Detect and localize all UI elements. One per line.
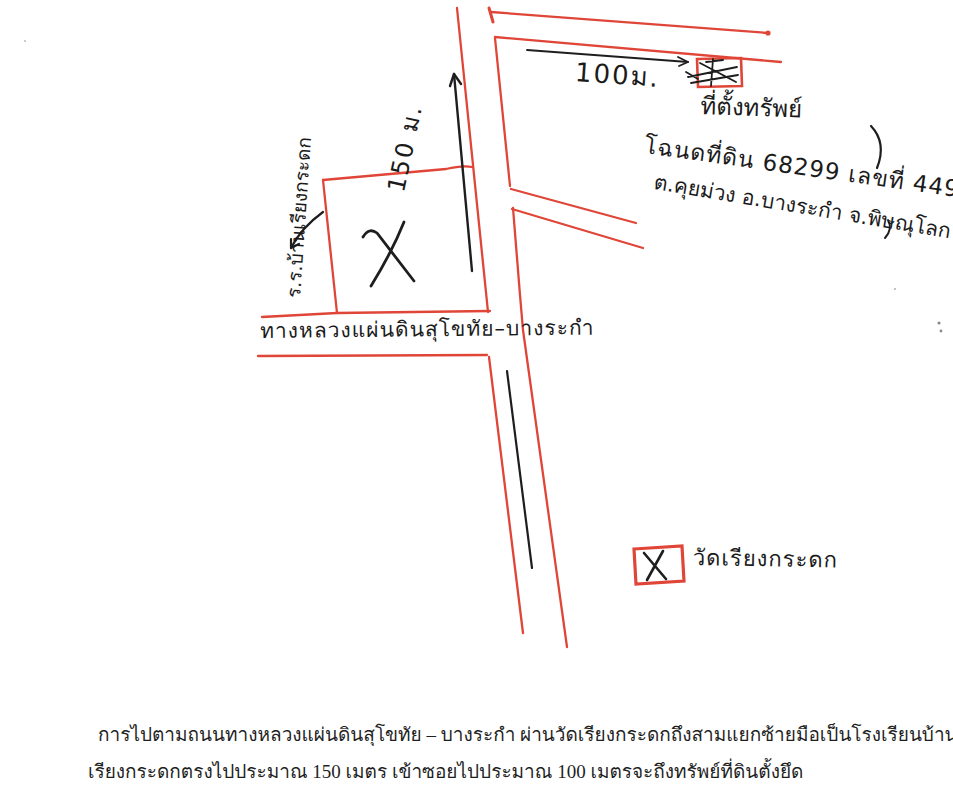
branch-road-lower [512,209,643,248]
plot-left-edge [323,180,337,313]
main-road-right-lower [513,208,567,647]
branch-road-upper [511,189,636,223]
soi-upper-line [491,12,768,33]
speck [24,40,26,42]
scanned-map-page: 100ม. 150 ม. ที่ตั้งทรัพย์ โฉนดที่ดิน 68… [0,0,953,800]
property-box-scribble [686,59,738,86]
soi-distance-label: 100ม. [574,58,661,92]
map-drawing [0,0,953,800]
caption-line-2: เรียงกระดกตรงไปประมาณ 150 เมตร เข้าซอยไป… [88,756,803,786]
lower-road-left-line [489,357,523,633]
speck [894,288,896,290]
deed-flourish-stroke [871,126,881,168]
speck [940,330,943,333]
arrow-150m-shaft [454,74,472,271]
speck [937,321,940,324]
scan-specks [24,40,942,333]
highway-lower-line [258,355,487,356]
legend-box [634,546,684,584]
soi-line-end-dot [765,30,770,35]
soi-start-tick [489,8,493,22]
main-road-right-upper [495,38,510,186]
property-location-label: ที่ตั้งทรัพย์ [700,93,803,123]
legend-temple-label: วัดเรียงกระดก [693,546,839,573]
highway-name-label: ทางหลวงแผ่นดินสุโขทัย–บางระกำ [260,316,595,343]
legend-x-mark [644,551,666,580]
caption-line-1: การไปตามถนนทางหลวงแผ่นดินสุโขทัย – บางระ… [98,719,953,749]
